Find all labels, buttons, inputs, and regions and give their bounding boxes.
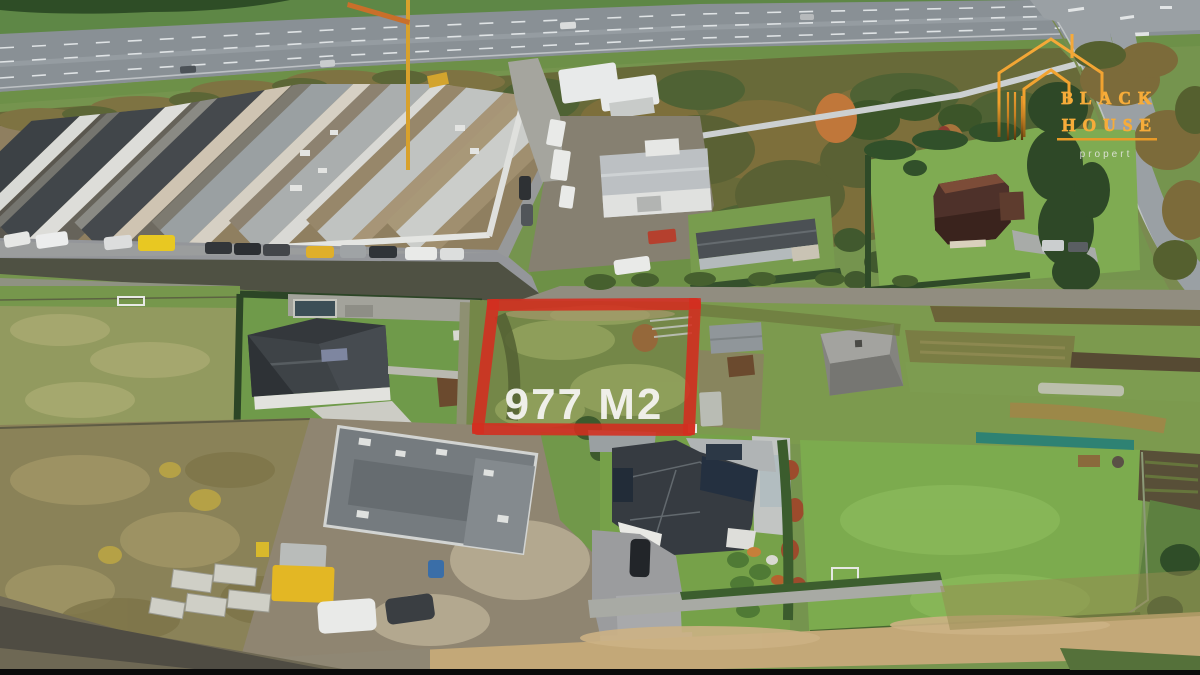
svg-text:HOUSE: HOUSE [1062,115,1158,135]
svg-text:propert: propert [1080,149,1133,160]
svg-text:977 M2: 977 M2 [505,380,664,429]
svg-text:BLACK: BLACK [1061,88,1158,108]
